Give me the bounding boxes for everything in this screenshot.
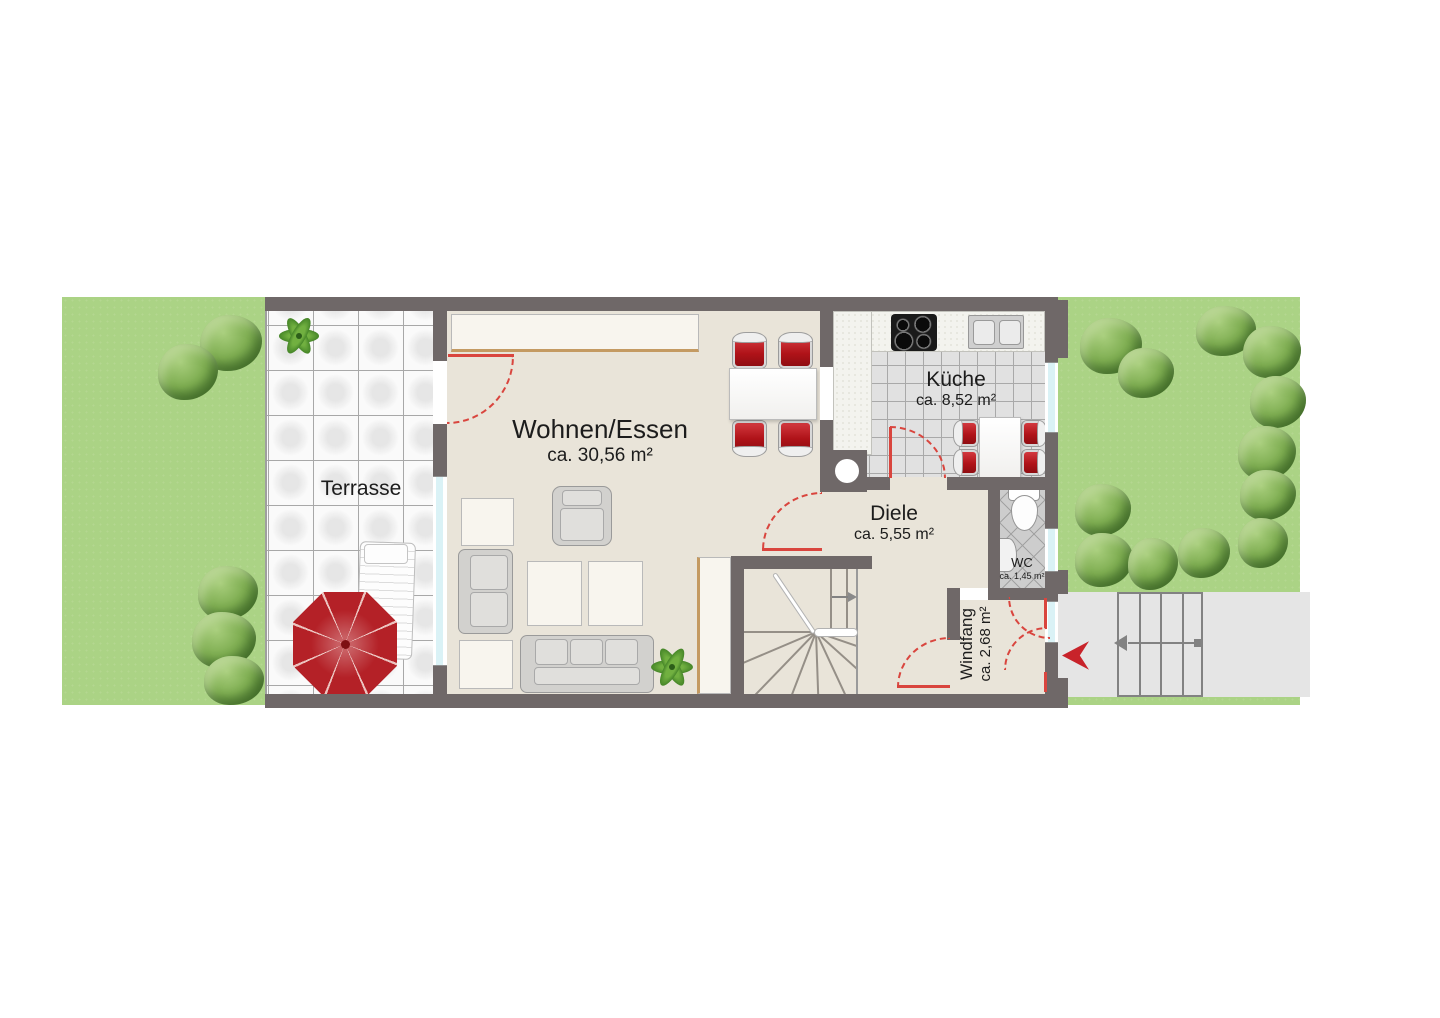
sun-lounger-head — [364, 544, 408, 564]
loveseat-cushion — [470, 592, 508, 627]
wall-kitchen-south — [867, 477, 890, 490]
room-label-kueche: Küche ca. 8,52 m² — [896, 368, 1016, 411]
outdoor-steps-arrow-icon — [1114, 635, 1127, 651]
stair-direction-arrow-icon — [848, 592, 857, 602]
plant-icon — [279, 316, 319, 356]
kueche-name: Küche — [896, 368, 1016, 392]
wall-left — [433, 666, 447, 694]
door-leaf-entrance — [1044, 598, 1047, 628]
terrasse-name: Terrasse — [321, 477, 402, 500]
steps-arrow-start-dot — [1194, 639, 1202, 647]
wall-top — [265, 297, 1058, 311]
living-room-window — [433, 476, 447, 666]
wall-kitchen-south — [947, 477, 1045, 490]
wall-stair-west — [731, 556, 744, 694]
stair-handrail-newel — [814, 628, 858, 637]
stair-handrail — [772, 572, 816, 634]
step-line — [1139, 592, 1141, 697]
steps-arrow-line — [1128, 642, 1198, 644]
kitchen-chair — [957, 421, 978, 446]
room-label-diele: Diele ca. 5,55 m² — [834, 502, 954, 545]
diele-area: ca. 5,55 m² — [834, 526, 954, 544]
diele-name: Diele — [834, 502, 954, 526]
entrance-threshold — [1044, 672, 1047, 692]
terrace-door-opening — [433, 361, 447, 424]
wall-right — [1045, 433, 1058, 528]
armchair-back — [562, 490, 602, 506]
kitchen-window — [1045, 362, 1058, 433]
wall-kitchen-living — [820, 311, 833, 367]
kitchen-chair — [957, 450, 978, 475]
sideboard — [451, 314, 699, 352]
plant-icon — [651, 646, 693, 688]
wall-stub-exterior — [1058, 300, 1068, 358]
wc-name: WC — [992, 556, 1052, 571]
shelf-cabinet — [697, 557, 731, 694]
dining-chair — [779, 336, 812, 368]
wall-block-circle — [835, 459, 859, 483]
sofa-cushion — [535, 639, 568, 665]
side-table — [459, 640, 513, 689]
sofa-cushion — [570, 639, 603, 665]
dining-chair — [733, 336, 766, 368]
step-line — [1160, 592, 1162, 697]
step-line — [1182, 592, 1184, 697]
umbrella-icon — [293, 592, 397, 696]
kitchen-chair — [1022, 421, 1043, 446]
windfang-name: Windfang — [957, 584, 977, 704]
windfang-area: ca. 2,68 m² — [977, 584, 994, 704]
wohnen-essen-area: ca. 30,56 m² — [470, 445, 730, 467]
kitchen-table — [979, 417, 1021, 478]
dining-chair — [733, 421, 766, 453]
kitchen-counter-left — [833, 311, 872, 455]
ottoman — [588, 561, 643, 626]
wohnen-essen-name: Wohnen/Essen — [470, 415, 730, 445]
room-label-wc: WC ca. 1,45 m² — [992, 556, 1052, 581]
cooktop-icon — [891, 314, 937, 351]
armchair-seat — [560, 508, 604, 541]
ottoman — [527, 561, 582, 626]
loveseat-cushion — [470, 555, 508, 590]
staircase — [744, 569, 858, 694]
kitchen-chair — [1022, 450, 1043, 475]
wall-stair-north — [731, 556, 872, 569]
wall-left — [433, 424, 447, 476]
dining-chair — [779, 421, 812, 453]
stair-arrow-line — [832, 596, 848, 598]
room-label-windfang: Windfang ca. 2,68 m² — [957, 584, 1019, 704]
kueche-area: ca. 8,52 m² — [896, 392, 1016, 410]
wall-right — [1045, 311, 1058, 362]
kitchen-sink-icon — [968, 315, 1024, 349]
wall-stub-exterior — [1058, 678, 1068, 708]
floor-plan: Terrasse Wohnen/Essen ca. 30,56 m² Küche… — [0, 0, 1440, 1018]
sofa-cushion — [605, 639, 638, 665]
room-label-terrasse: Terrasse — [300, 477, 422, 501]
terrace-edge — [265, 311, 267, 694]
sofa-seat — [534, 667, 640, 685]
dining-table — [729, 368, 817, 420]
wall-kitchen-living — [820, 420, 833, 450]
wall-bottom — [265, 694, 1058, 708]
room-label-wohnen-essen: Wohnen/Essen ca. 30,56 m² — [470, 415, 730, 467]
side-table — [461, 498, 514, 546]
wall-left — [433, 311, 447, 361]
wall-stub-exterior — [1058, 570, 1068, 594]
wc-area: ca. 1,45 m² — [992, 571, 1052, 581]
pass-through-opening — [820, 367, 833, 420]
